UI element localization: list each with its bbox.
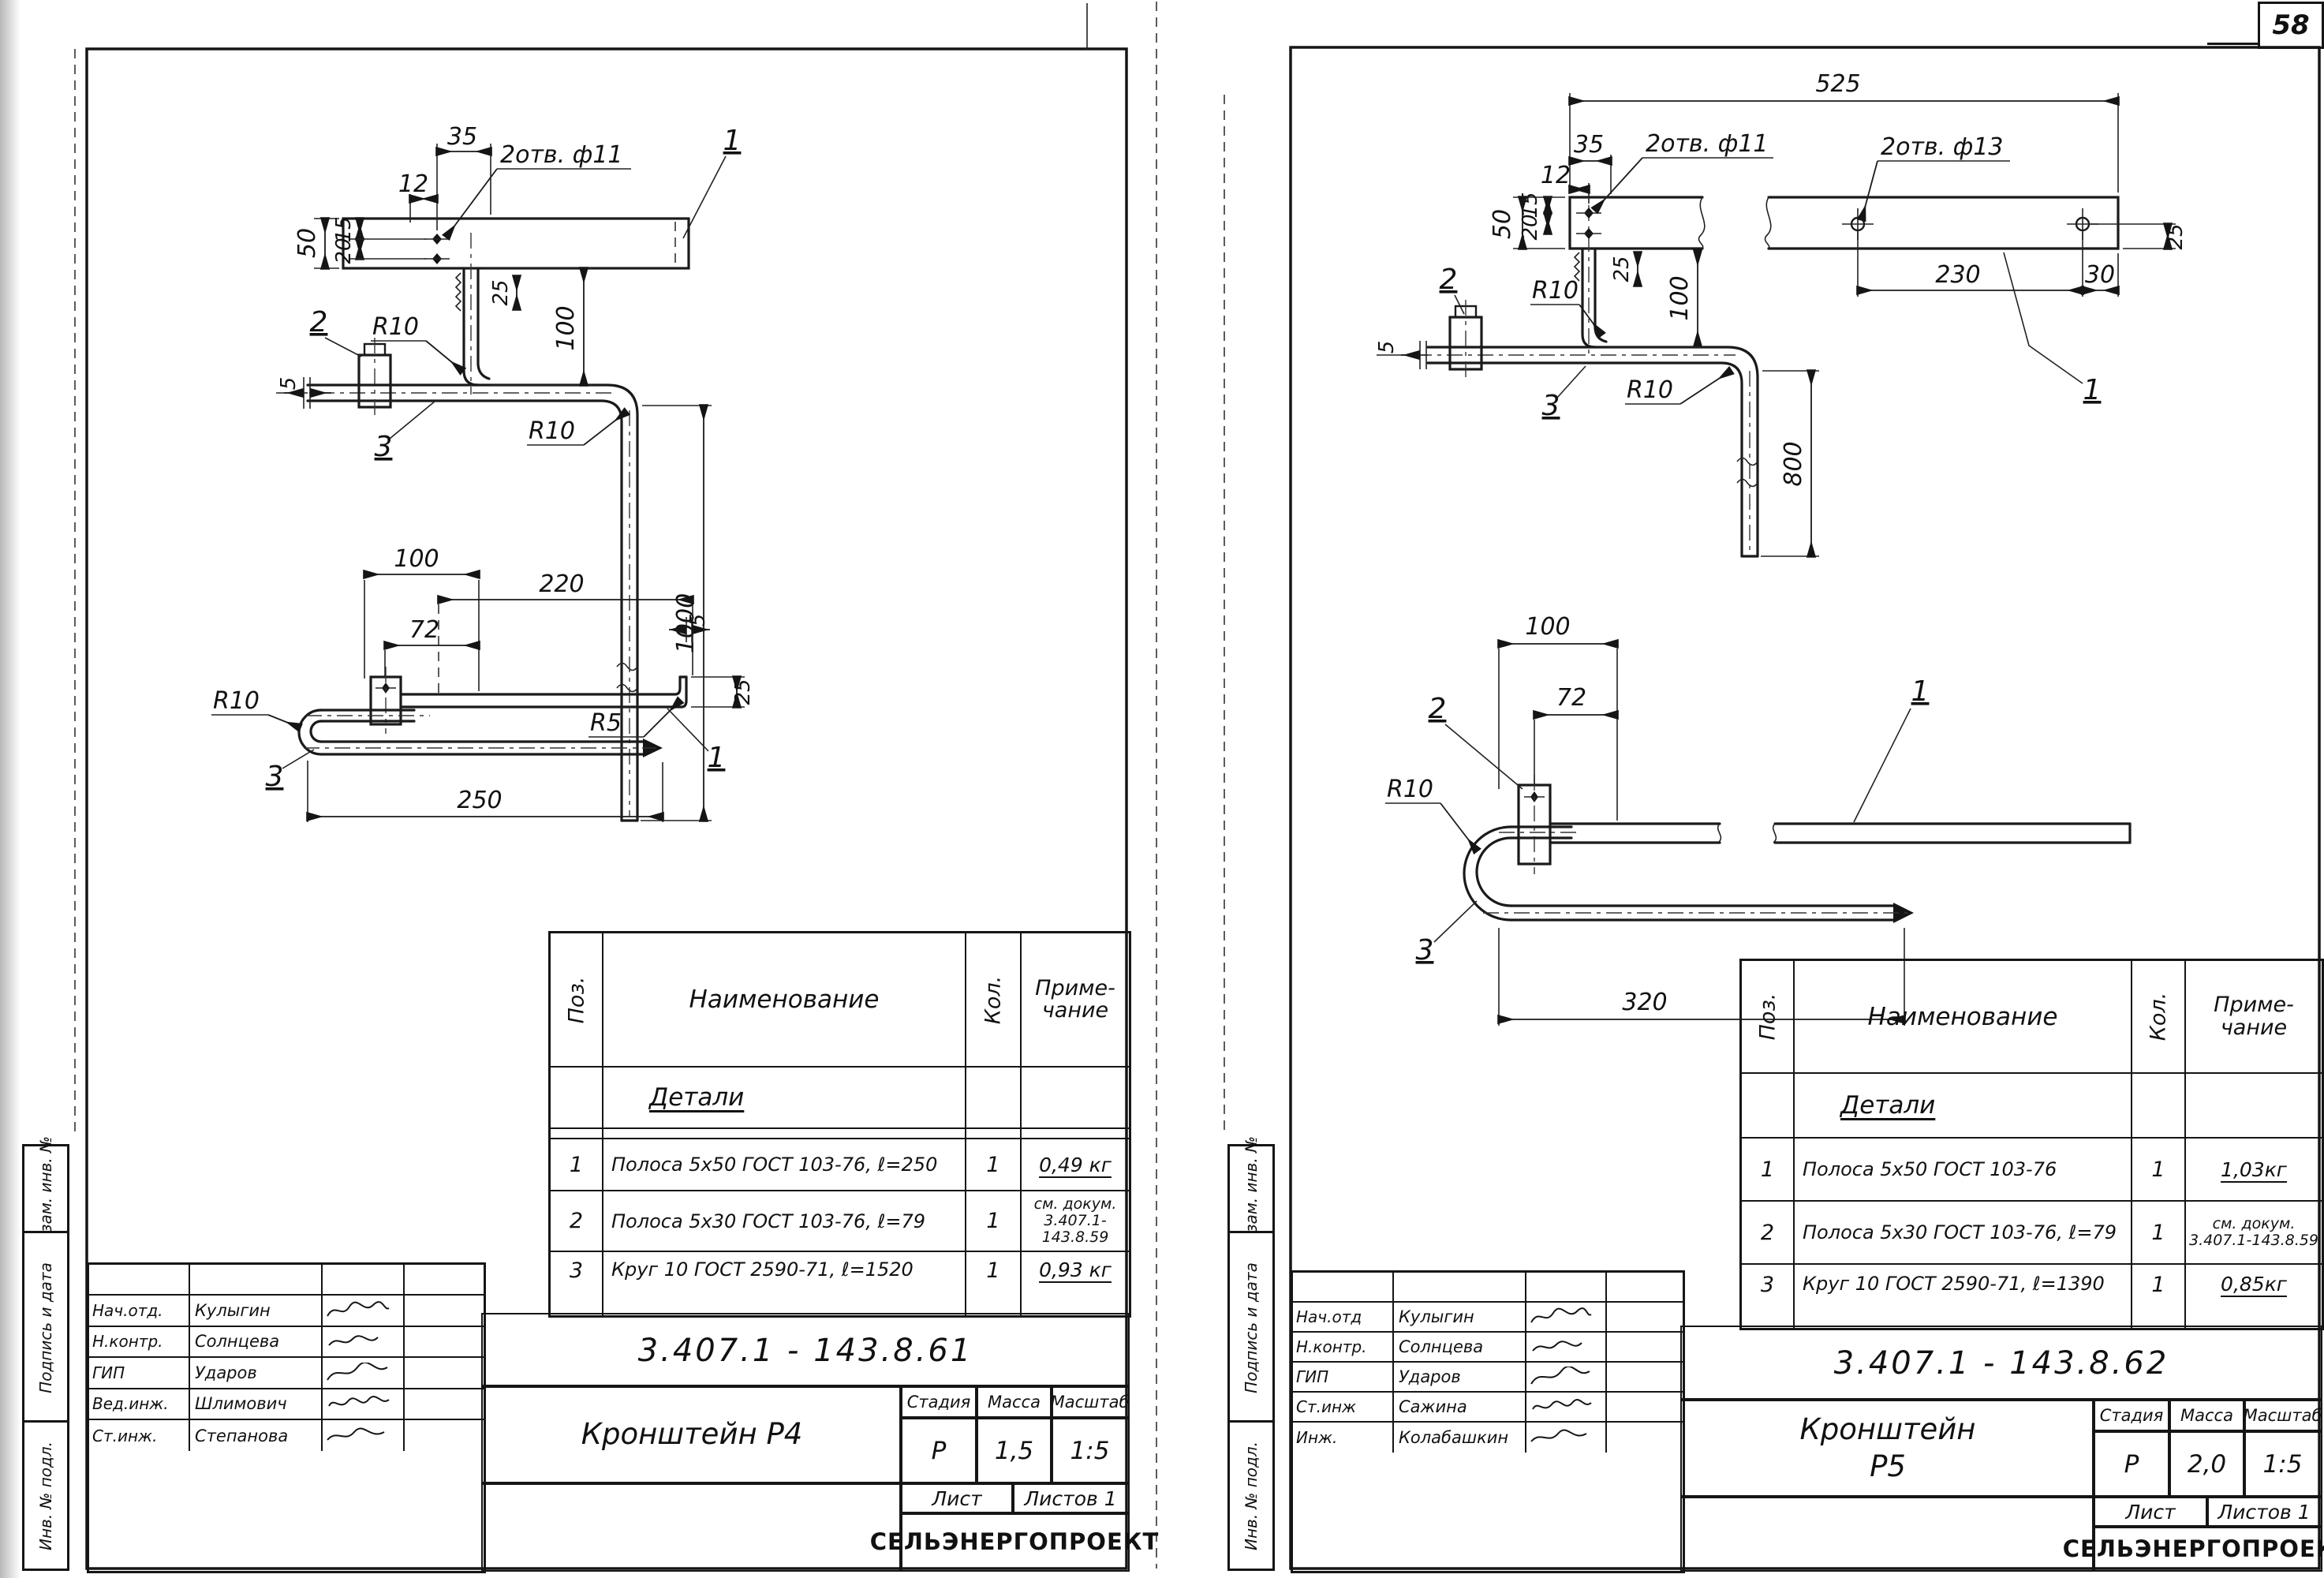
right-bracket-top-view	[1464, 775, 2130, 923]
svg-text:35: 35	[1574, 131, 1604, 159]
sig-name: Ударов	[1394, 1363, 1526, 1393]
svg-text:5: 5	[686, 614, 710, 627]
revision-signature-grid-right: Нач.отд Кулыгин Н.контр. Солнцева ГИП Уд…	[1291, 1270, 1685, 1573]
svg-text:230: 230	[1935, 261, 1980, 289]
table-row: 2	[551, 1191, 603, 1252]
svg-text:R10: R10	[372, 313, 419, 341]
title-block-empty-left	[481, 1482, 902, 1572]
svg-text:100: 100	[1525, 613, 1570, 641]
svg-text:5: 5	[277, 377, 301, 391]
svg-text:72: 72	[409, 616, 439, 644]
section-details: Детали	[603, 1068, 966, 1129]
header-name: Наименование	[1795, 961, 2132, 1074]
table-row: 3	[1742, 1265, 1795, 1328]
right-side-view-dimensions: 525 35 12 15 50 20 2отв. ф11 2отв. ф13 2…	[1375, 70, 2188, 556]
sig-role: ГИП	[1293, 1363, 1394, 1393]
svg-text:1: 1	[708, 742, 726, 774]
signature	[1526, 1423, 1607, 1453]
sig-name: Степанова	[190, 1420, 323, 1451]
sig-name: Кулыгин	[1394, 1303, 1526, 1333]
mass-label: Масса	[975, 1385, 1053, 1419]
svg-text:25: 25	[489, 279, 513, 305]
svg-text:3: 3	[1416, 934, 1434, 967]
table-row: 1	[1742, 1139, 1795, 1202]
svg-text:R10: R10	[1532, 277, 1579, 305]
svg-text:5: 5	[1375, 341, 1399, 354]
svg-text:2: 2	[1440, 264, 1458, 296]
header-name: Наименование	[603, 933, 966, 1068]
svg-text:R10: R10	[1627, 376, 1673, 404]
svg-text:30: 30	[2085, 261, 2115, 289]
svg-text:220: 220	[539, 570, 584, 598]
svg-text:2отв. ф13: 2отв. ф13	[1881, 133, 2004, 161]
svg-text:1: 1	[2083, 374, 2102, 406]
sig-name: Сажина	[1394, 1393, 1526, 1423]
stage-value-right: Р	[2092, 1430, 2171, 1498]
left-bracket-top-view	[299, 667, 686, 757]
svg-text:3: 3	[266, 761, 284, 793]
svg-text:3: 3	[1542, 390, 1560, 422]
stamp-vzam-inv-right: Взам. инв. №	[1227, 1144, 1275, 1236]
sig-role: Ст.инж	[1293, 1393, 1394, 1423]
svg-text:R10: R10	[1387, 776, 1433, 803]
svg-text:R10: R10	[213, 687, 260, 715]
stage-label: Стадия	[899, 1385, 978, 1419]
svg-text:2отв. ф11: 2отв. ф11	[1646, 130, 1769, 158]
svg-text:100: 100	[1666, 275, 1694, 320]
header-pos: Поз.	[551, 933, 603, 1068]
scale-value-right: 1:5	[2243, 1430, 2322, 1498]
parts-table-right: Поз. Наименование Кол. Приме-чание Детал…	[1739, 959, 2324, 1330]
table-row: 1	[551, 1139, 603, 1191]
sheets-label-left: Листов 1	[1011, 1482, 1130, 1515]
signature	[1526, 1363, 1607, 1393]
sheet-label-right: Лист	[2092, 1495, 2209, 1528]
drawing-title-right: КронштейнР5	[1680, 1398, 2095, 1498]
page-number-step-line	[2207, 43, 2259, 45]
left-bracket-side-view	[276, 219, 689, 821]
sig-role: Н.контр.	[89, 1327, 190, 1358]
signature	[323, 1358, 405, 1389]
title-block-empty-right	[1680, 1495, 2095, 1572]
organization-right: СЕЛЬЭНЕРГОПРОЕКТ	[2092, 1525, 2322, 1572]
sig-role: Вед.инж.	[89, 1389, 190, 1420]
sig-role: Нач.отд	[1293, 1303, 1394, 1333]
page-number: 58	[2258, 2, 2324, 49]
signature	[1526, 1333, 1607, 1363]
header-qty: Кол.	[966, 933, 1022, 1068]
svg-text:12: 12	[398, 170, 428, 198]
revision-signature-grid-left: Нач.отд. Кулыгин Н.контр. Солнцева ГИП У…	[87, 1262, 486, 1573]
svg-text:320: 320	[1622, 989, 1667, 1016]
signature	[323, 1296, 405, 1326]
svg-text:1: 1	[723, 125, 742, 157]
stamp-podpis-data-right: Подпись и дата	[1227, 1231, 1275, 1425]
section-details: Детали	[1795, 1074, 2132, 1139]
table-row: 2	[1742, 1202, 1795, 1265]
stamp-inv-podl-right: Инв. № подл.	[1227, 1420, 1275, 1571]
svg-text:2: 2	[1429, 693, 1447, 725]
sig-name: Шлимович	[190, 1389, 323, 1420]
header-note: Приме-чание	[2186, 961, 2322, 1074]
drawing-title-left: Кронштейн Р4	[481, 1385, 902, 1485]
svg-text:800: 800	[1780, 441, 1807, 486]
mass-value-left: 1,5	[975, 1416, 1053, 1485]
sig-name: Ударов	[190, 1358, 323, 1389]
scale-value-left: 1:5	[1050, 1416, 1130, 1485]
sig-role: Нач.отд.	[89, 1296, 190, 1326]
signature	[323, 1420, 405, 1451]
organization-left: СЕЛЬЭНЕРГОПРОЕКТ	[899, 1512, 1130, 1572]
doc-number-right: 3.407.1 - 143.8.62	[1680, 1326, 2322, 1401]
svg-text:3: 3	[375, 431, 393, 463]
scanned-drawing-page: .thick{stroke:#1a1a1a;stroke-width:3.2;f…	[0, 0, 2324, 1578]
sheet-label-left: Лист	[899, 1482, 1014, 1515]
sig-name: Кулыгин	[190, 1296, 323, 1326]
svg-text:50: 50	[293, 228, 321, 258]
stage-label: Стадия	[2092, 1398, 2171, 1433]
header-qty: Кол.	[2132, 961, 2186, 1074]
svg-text:25: 25	[1610, 256, 1634, 282]
svg-text:25: 25	[731, 679, 755, 705]
svg-text:2: 2	[310, 306, 328, 338]
svg-text:525: 525	[1815, 70, 1860, 98]
svg-text:100: 100	[394, 545, 439, 573]
svg-text:R10: R10	[529, 417, 575, 445]
sheets-label-right: Листов 1	[2206, 1495, 2322, 1528]
svg-text:1: 1	[1911, 675, 1930, 708]
parts-table-left: Поз. Наименование Кол. Приме-чание Детал…	[548, 931, 1131, 1318]
right-bracket-side-view	[1377, 197, 2118, 556]
svg-text:50: 50	[1489, 209, 1516, 239]
svg-text:25: 25	[2164, 223, 2188, 249]
header-pos: Поз.	[1742, 961, 1795, 1074]
header-note: Приме-чание	[1022, 933, 1129, 1068]
mass-label: Масса	[2168, 1398, 2246, 1433]
sig-name: Колабашкин	[1394, 1423, 1526, 1453]
sig-name: Солнцева	[1394, 1333, 1526, 1363]
doc-number-left: 3.407.1 - 143.8.61	[481, 1313, 1130, 1388]
stamp-inv-podl-left: Инв. № подл.	[22, 1420, 69, 1571]
svg-text:20: 20	[1519, 214, 1542, 240]
signature	[323, 1327, 405, 1358]
sig-role: Инж.	[1293, 1423, 1394, 1453]
sig-role: ГИП	[89, 1358, 190, 1389]
stamp-vzam-inv-left: Взам. инв. №	[22, 1144, 69, 1236]
scale-label: Масштаб	[1050, 1385, 1130, 1419]
left-top-view-dimensions: 100 220 72 5 R5 25 R10 3 1	[211, 545, 755, 822]
svg-text:20: 20	[332, 237, 356, 264]
stamp-podpis-data-left: Подпись и дата	[22, 1231, 69, 1425]
signature	[1526, 1393, 1607, 1423]
svg-text:12: 12	[1541, 162, 1571, 189]
svg-text:100: 100	[552, 305, 580, 350]
svg-text:R5: R5	[590, 709, 622, 737]
svg-text:250: 250	[457, 787, 502, 814]
signature	[323, 1389, 405, 1420]
mass-value-right: 2,0	[2168, 1430, 2246, 1498]
svg-text:72: 72	[1556, 684, 1586, 712]
table-row: 3	[551, 1252, 603, 1315]
svg-text:35: 35	[447, 123, 477, 151]
signature	[1526, 1303, 1607, 1333]
sig-role: Н.контр.	[1293, 1333, 1394, 1363]
stage-value-left: Р	[899, 1416, 978, 1485]
scale-label: Масштаб	[2243, 1398, 2322, 1433]
sig-name: Солнцева	[190, 1327, 323, 1358]
svg-text:2отв. ф11: 2отв. ф11	[500, 141, 623, 169]
sig-role: Ст.инж.	[89, 1420, 190, 1451]
